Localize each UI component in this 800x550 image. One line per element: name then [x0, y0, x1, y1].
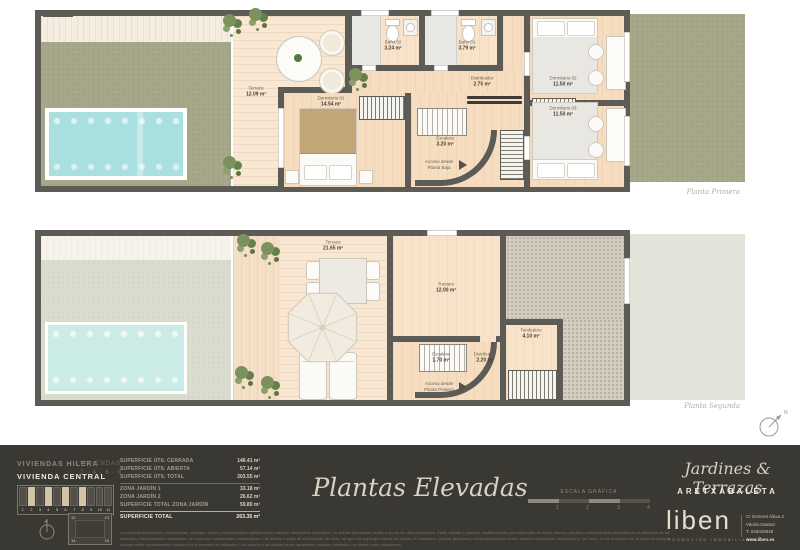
- room-label-distribuidor: Distribuidor2.75 m²: [471, 76, 494, 89]
- plan-caption-primera: Planta Primera: [620, 188, 740, 196]
- disclaimer-text: La presente información, perspectivas, m…: [120, 530, 670, 549]
- nightstand: [285, 170, 299, 184]
- door-gap: [524, 52, 530, 76]
- room-label-bano-02: Baño 023.24 m²: [384, 40, 401, 53]
- stool: [588, 44, 604, 60]
- desk: [606, 36, 626, 90]
- garden-right-ghost: [630, 234, 745, 400]
- site-key-map: 1 2 3 4 5 6 7 8 9 10 11: [17, 485, 114, 515]
- site-unit-highlighted: 4: [45, 487, 53, 514]
- window: [431, 10, 459, 16]
- access-note: Acceso desde Planta Baja: [421, 159, 457, 171]
- site-unit: 11: [104, 487, 112, 514]
- site-key-map-block: 12 13 14 15: [68, 513, 112, 545]
- door-gap: [524, 136, 530, 160]
- room-label-terraza: Terraza12.09 m²: [246, 86, 266, 99]
- deck-strip-ghost: [41, 236, 231, 260]
- stool: [588, 70, 604, 86]
- shower: [352, 16, 381, 65]
- area-row: ZONA JARDÍN 133.18 m²: [120, 486, 260, 492]
- scale-tick: 2: [586, 505, 589, 511]
- deck-strip: [41, 16, 231, 42]
- parasol-umbrella: [284, 289, 361, 366]
- window: [624, 116, 630, 166]
- area-row: ZONA JARDÍN 226.62 m²: [120, 494, 260, 500]
- area-row: SUPERFICIE TOTAL ZONA JARDÍN59.80 m²: [120, 502, 260, 508]
- scale-tick: 4: [647, 505, 650, 511]
- room-label-bano-01: Baño 013.79 m²: [458, 40, 475, 53]
- nightstand: [359, 170, 373, 184]
- site-unit: 9: [87, 487, 95, 514]
- bed-dormitorio-01: [299, 108, 357, 186]
- gravel-roof: [563, 319, 624, 400]
- area-row: SUPERFICIE ÚTIL TOTAL203.55 m²: [120, 474, 260, 480]
- sink: [481, 19, 496, 36]
- swimming-pool-ghost: [45, 322, 187, 394]
- table-separator: [120, 511, 260, 512]
- liben-logo: liben: [666, 505, 731, 536]
- sheet-title: Plantas Elevadas: [310, 473, 530, 502]
- plant: [261, 376, 274, 389]
- floorplan-planta-segunda: Terraza21.65 m² Trastero12.00 m² Tendede…: [35, 230, 745, 416]
- terrace-chair: [319, 68, 345, 94]
- plant: [261, 242, 274, 255]
- brand-address2: Vitoria-Gasteiz: [746, 521, 784, 529]
- plant: [249, 8, 262, 21]
- plant: [223, 14, 236, 27]
- site-unit: 5: [53, 487, 61, 514]
- room-label-tendedero: Tendedero4.10 m²: [520, 328, 541, 341]
- garden-right: [630, 14, 745, 182]
- site-unit: 1: [19, 487, 27, 514]
- plant: [223, 156, 236, 169]
- plan-sheet: Terraza12.09 m² Dormitorio 0114.54 m² Ba…: [0, 0, 800, 550]
- window: [624, 258, 630, 304]
- area-total-row: SUPERFICIE TOTAL263.35 m²: [120, 514, 260, 520]
- units-numbers: 2 - 4 - 6 - 8: [80, 470, 122, 476]
- drying-rack: [508, 370, 557, 400]
- brand-divider: [741, 515, 742, 537]
- room-label-escalera: Escalera3.20 m²: [436, 136, 454, 149]
- liben-tagline: PROMOCIÓN INMOBILIARIA: [668, 538, 758, 542]
- table-separator: [120, 483, 260, 484]
- compass-north-label: N: [784, 410, 788, 416]
- brand-phone: T. 945029048: [746, 528, 784, 536]
- access-arrow-icon: [459, 382, 467, 392]
- room-label-dormitorio-03: Dormitorio 0311.50 m²: [549, 106, 576, 119]
- plant: [237, 234, 250, 247]
- room-label-terraza: Terraza21.65 m²: [323, 240, 343, 253]
- room-label-dormitorio-01: Dormitorio 0114.54 m²: [317, 96, 344, 109]
- compass-icon-footer: [36, 517, 58, 541]
- site-unit-highlighted: 8: [79, 487, 87, 514]
- stool: [588, 142, 604, 158]
- swimming-pool: [45, 108, 187, 180]
- area-row: SUPERFICIE ÚTIL ABIERTA57.14 m²: [120, 466, 260, 472]
- room-label-dormitorio-02: Dormitorio 0211.50 m²: [549, 76, 576, 89]
- scale-tick: 3: [617, 505, 620, 511]
- sliding-door: [467, 101, 522, 104]
- plant: [235, 366, 248, 379]
- access-arrow-icon: [459, 160, 467, 170]
- title-block: VIVIENDAS HILERA VIVIENDA CENTRAL VIVIEN…: [0, 445, 800, 550]
- table-plant: [294, 54, 302, 62]
- window: [624, 32, 630, 82]
- desk: [606, 108, 626, 162]
- site-unit: 3: [36, 487, 44, 514]
- sink: [403, 19, 418, 36]
- gravel-roof: [506, 236, 624, 319]
- shower: [425, 16, 457, 65]
- garden-left: [41, 16, 231, 186]
- floorplan-planta-primera: Terraza12.09 m² Dormitorio 0114.54 m² Ba…: [35, 10, 745, 202]
- dining-chair: [366, 282, 380, 301]
- dining-chair: [366, 261, 380, 280]
- area-row: SUPERFICIE ÚTIL CERRADA146.41 m²: [120, 458, 260, 464]
- scale-tick: 1: [556, 505, 559, 511]
- wardrobe: [359, 96, 405, 120]
- brand-web: www.liben.es: [746, 536, 784, 544]
- closet: [500, 130, 524, 180]
- sliding-door: [467, 96, 522, 99]
- plan-caption-segunda: Planta Segunda: [620, 402, 740, 410]
- scale-bar: [528, 499, 650, 503]
- room-label-trastero: Trastero12.00 m²: [436, 282, 456, 295]
- development-name: ARETXABALETA: [655, 487, 800, 496]
- brand-address1: C/ General Álava 2: [746, 513, 784, 521]
- hall-floor: [352, 71, 524, 93]
- site-unit-highlighted: 6: [62, 487, 70, 514]
- dining-chair: [306, 261, 320, 280]
- brand-contact: C/ General Álava 2 Vitoria-Gasteiz T. 94…: [746, 513, 784, 544]
- terrace-floor: [233, 16, 278, 186]
- garden-left-ghost: [41, 236, 231, 400]
- room-label-distribuidor: Distribuidor2.20 m²: [474, 352, 497, 365]
- site-unit-highlighted: 2: [28, 487, 36, 514]
- site-unit: 10: [96, 487, 104, 514]
- plant: [349, 68, 362, 81]
- units-label: VIVIENDAS: [80, 461, 121, 467]
- terrace-chair: [319, 30, 345, 56]
- window: [361, 10, 389, 16]
- access-note: Acceso desde Planta Primera: [421, 381, 457, 393]
- site-unit: 7: [70, 487, 78, 514]
- wall-stub: [43, 13, 73, 17]
- window: [427, 230, 457, 236]
- scale-label: ESCALA GRÁFICA: [528, 489, 650, 495]
- stool: [588, 116, 604, 132]
- room-label-escalera: Escalera1.70 m²: [432, 352, 450, 365]
